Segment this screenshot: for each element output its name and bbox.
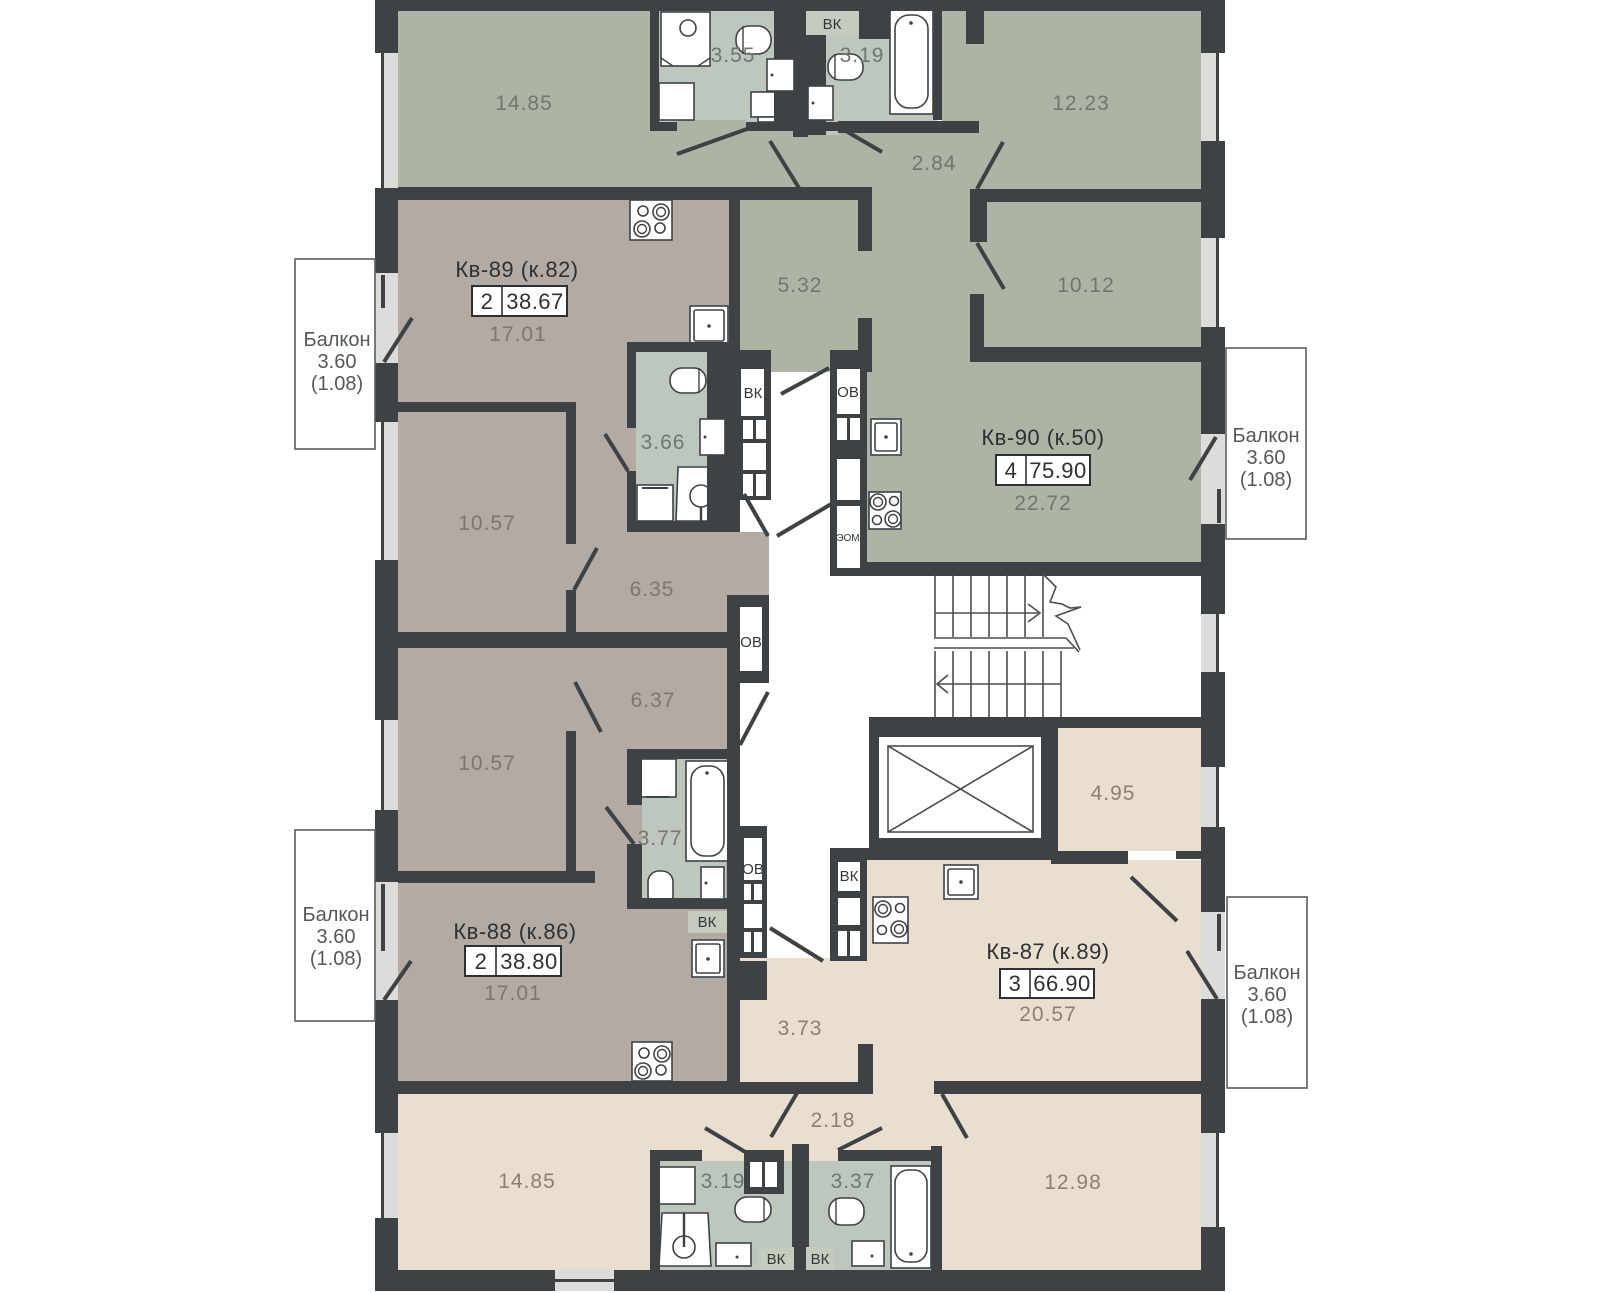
svg-text:Балкон: Балкон (303, 329, 370, 351)
svg-text:3.73: 3.73 (778, 1017, 823, 1040)
svg-text:22.72: 22.72 (1014, 492, 1072, 515)
svg-text:(1.08): (1.08) (1240, 469, 1292, 491)
svg-text:Кв-89 (к.82): Кв-89 (к.82) (455, 257, 578, 282)
svg-text:10.57: 10.57 (458, 752, 516, 775)
svg-text:(1.08): (1.08) (1241, 1006, 1293, 1028)
svg-text:3.37: 3.37 (831, 1170, 876, 1193)
svg-text:Кв-88 (к.86): Кв-88 (к.86) (453, 919, 576, 944)
svg-text:17.01: 17.01 (489, 323, 547, 346)
svg-text:2: 2 (475, 949, 488, 974)
svg-text:2: 2 (481, 289, 494, 314)
svg-text:6.37: 6.37 (631, 689, 676, 712)
svg-text:ВК: ВК (744, 385, 763, 402)
svg-text:ВК: ВК (698, 914, 717, 931)
svg-text:ОВ: ОВ (837, 384, 859, 401)
svg-text:Кв-90 (к.50): Кв-90 (к.50) (981, 425, 1104, 450)
svg-text:6.35: 6.35 (630, 578, 675, 601)
svg-text:(1.08): (1.08) (311, 373, 363, 395)
svg-text:(1.08): (1.08) (310, 948, 362, 970)
svg-text:20.57: 20.57 (1019, 1003, 1077, 1026)
svg-text:ВК: ВК (811, 1251, 830, 1268)
svg-text:3.55: 3.55 (711, 44, 756, 67)
svg-text:ЭОМ: ЭОМ (836, 533, 859, 544)
svg-text:3.60: 3.60 (1247, 447, 1286, 469)
svg-text:ОВ: ОВ (742, 861, 764, 878)
svg-text:3.60: 3.60 (317, 926, 356, 948)
svg-text:3.60: 3.60 (318, 351, 357, 373)
svg-text:4: 4 (1005, 458, 1018, 483)
svg-text:4.95: 4.95 (1091, 782, 1136, 805)
svg-text:12.23: 12.23 (1052, 92, 1110, 115)
svg-text:66.90: 66.90 (1033, 971, 1091, 996)
svg-text:5.32: 5.32 (778, 274, 823, 297)
svg-text:Балкон: Балкон (1233, 962, 1300, 984)
svg-text:14.85: 14.85 (498, 1170, 556, 1193)
svg-text:ВК: ВК (823, 16, 842, 33)
svg-text:Кв-87 (к.89): Кв-87 (к.89) (986, 939, 1109, 964)
svg-text:3.77: 3.77 (638, 827, 683, 850)
svg-text:3.19: 3.19 (701, 1170, 746, 1193)
svg-text:14.85: 14.85 (495, 92, 553, 115)
svg-text:3.19: 3.19 (840, 44, 885, 67)
svg-text:10.57: 10.57 (458, 512, 516, 535)
svg-text:2.18: 2.18 (811, 1109, 856, 1132)
svg-text:Балкон: Балкон (302, 904, 369, 926)
svg-text:38.67: 38.67 (506, 289, 564, 314)
svg-text:17.01: 17.01 (484, 982, 542, 1005)
svg-text:3: 3 (1009, 971, 1022, 996)
svg-text:3.60: 3.60 (1248, 984, 1287, 1006)
svg-text:ОВ: ОВ (740, 634, 762, 651)
svg-text:2.84: 2.84 (912, 152, 957, 175)
svg-text:ВК: ВК (840, 868, 859, 885)
svg-text:12.98: 12.98 (1044, 1171, 1102, 1194)
svg-text:3.66: 3.66 (641, 431, 686, 454)
svg-text:75.90: 75.90 (1029, 458, 1087, 483)
svg-text:10.12: 10.12 (1057, 274, 1115, 297)
svg-text:Балкон: Балкон (1232, 425, 1299, 447)
svg-text:ВК: ВК (767, 1251, 786, 1268)
svg-text:38.80: 38.80 (500, 949, 558, 974)
